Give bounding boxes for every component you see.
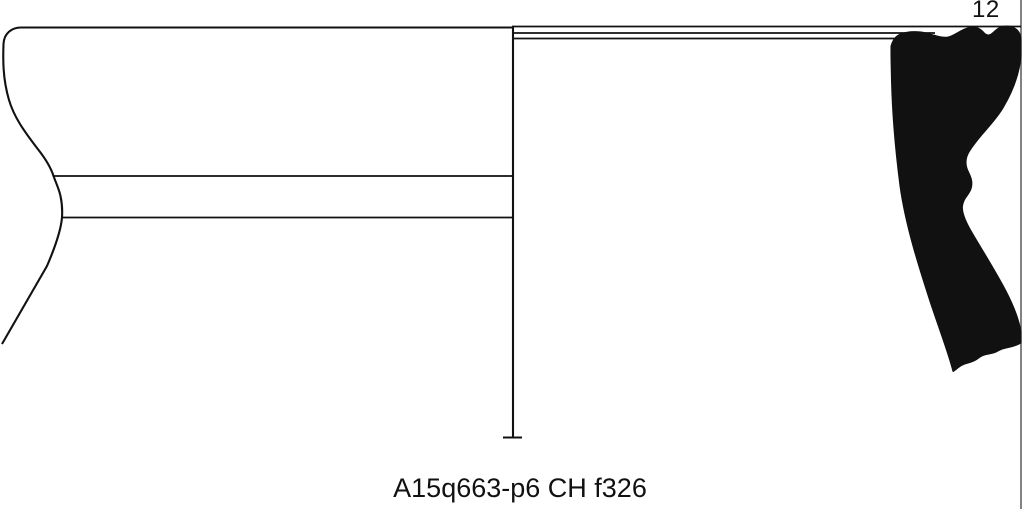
vessel-exterior-outline [2,28,512,345]
find-label-caption: A15q663-p6 CH f326 [300,473,740,503]
vessel-drawing-canvas [0,0,1024,509]
plate-number-label: 12 [972,0,1016,23]
pottery-plate-figure: 12 A15q663-p6 CH f326 [0,0,1024,509]
section-profile-silhouette [891,26,1021,372]
